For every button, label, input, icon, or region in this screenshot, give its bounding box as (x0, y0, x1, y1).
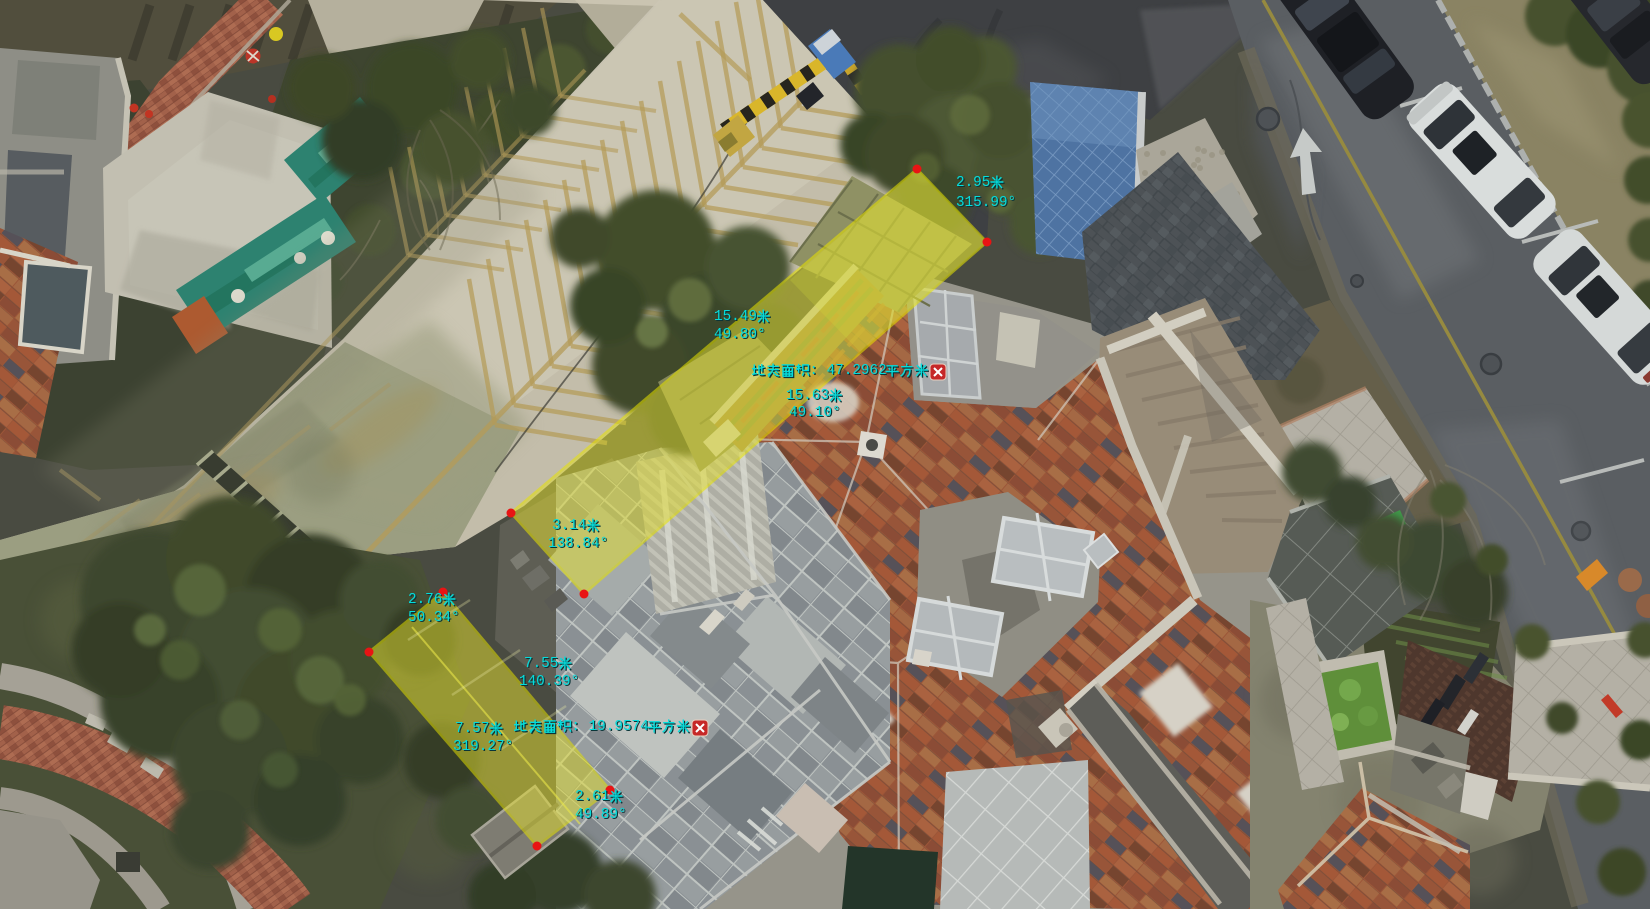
svg-text:7.55: 7.55 (524, 656, 558, 672)
svg-text:: 47.2962: : 47.2962 (809, 363, 886, 379)
svg-text:50.34°: 50.34° (408, 610, 460, 626)
svg-text:49.10°: 49.10° (789, 405, 841, 421)
svg-text:2.61: 2.61 (575, 789, 609, 805)
svg-text:49.80°: 49.80° (714, 327, 766, 343)
svg-text:15.63: 15.63 (786, 388, 829, 404)
svg-text:2.95: 2.95 (956, 175, 990, 191)
svg-text:: 19.9574: : 19.9574 (571, 719, 648, 735)
svg-text:15.49: 15.49 (714, 309, 757, 325)
svg-text:49.89°: 49.89° (575, 807, 627, 823)
svg-text:7.57: 7.57 (455, 721, 489, 737)
svg-text:2.76: 2.76 (408, 592, 442, 608)
svg-text:138.84°: 138.84° (548, 536, 608, 552)
svg-text:319.27°: 319.27° (453, 739, 513, 755)
svg-text:140.39°: 140.39° (519, 674, 579, 690)
svg-text:315.99°: 315.99° (956, 195, 1016, 211)
svg-text:3.14: 3.14 (552, 518, 586, 534)
